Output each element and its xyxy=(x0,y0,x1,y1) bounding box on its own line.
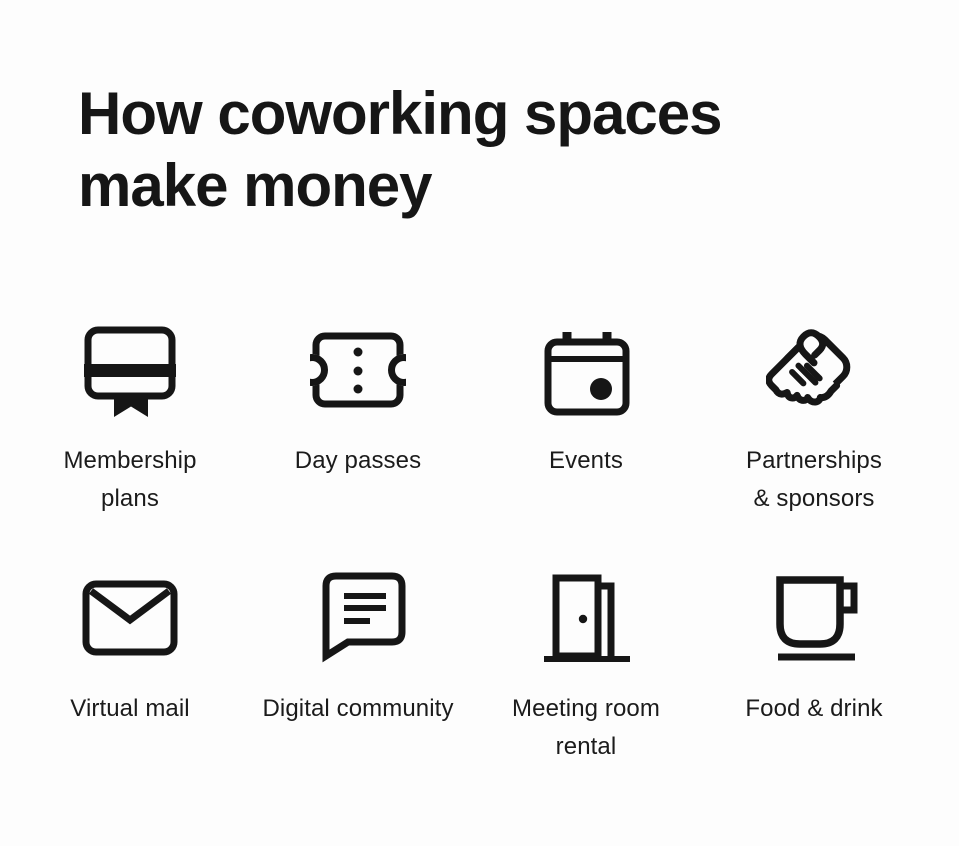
revenue-card-virtual-mail: Virtual mail xyxy=(16,570,244,766)
revenue-card-day-passes: Day passes xyxy=(244,322,472,518)
revenue-card-partnerships: Partnerships & sponsors xyxy=(700,322,928,518)
revenue-card-label: Meeting room rental xyxy=(512,690,660,766)
chat-bubble-icon xyxy=(310,570,406,666)
revenue-card-label: Membership plans xyxy=(63,442,196,518)
revenue-card-label: Events xyxy=(549,442,623,480)
revenue-card-events: Events xyxy=(472,322,700,518)
revenue-card-membership: Membership plans xyxy=(16,322,244,518)
coffee-mug-icon xyxy=(766,570,862,666)
revenue-card-meeting-room: Meeting room rental xyxy=(472,570,700,766)
handshake-icon xyxy=(766,322,862,418)
revenue-card-label: Virtual mail xyxy=(70,690,189,728)
ticket-icon xyxy=(310,322,406,418)
calendar-icon xyxy=(538,322,634,418)
label-line: plans xyxy=(63,480,196,518)
label-line: Meeting room xyxy=(512,690,660,728)
revenue-card-food-drink: Food & drink xyxy=(700,570,928,766)
label-line: & sponsors xyxy=(746,480,882,518)
revenue-card-label: Digital community xyxy=(262,690,453,728)
envelope-icon xyxy=(82,570,178,666)
infographic-page: How coworking spaces make money Membersh… xyxy=(0,0,959,766)
label-line: Digital community xyxy=(262,690,453,728)
revenue-card-digital-community: Digital community xyxy=(244,570,472,766)
label-line: Partnerships xyxy=(746,442,882,480)
open-door-icon xyxy=(538,570,634,666)
label-line: Virtual mail xyxy=(70,690,189,728)
membership-card-icon xyxy=(82,322,178,418)
label-line: Events xyxy=(549,442,623,480)
label-line: rental xyxy=(512,728,660,766)
label-line: Day passes xyxy=(295,442,421,480)
page-title: How coworking spaces make money xyxy=(78,78,828,222)
revenue-grid: Membership plans Day passes xyxy=(0,322,959,766)
revenue-card-label: Day passes xyxy=(295,442,421,480)
label-line: Membership xyxy=(63,442,196,480)
label-line: Food & drink xyxy=(745,690,882,728)
revenue-card-label: Food & drink xyxy=(745,690,882,728)
revenue-card-label: Partnerships & sponsors xyxy=(746,442,882,518)
